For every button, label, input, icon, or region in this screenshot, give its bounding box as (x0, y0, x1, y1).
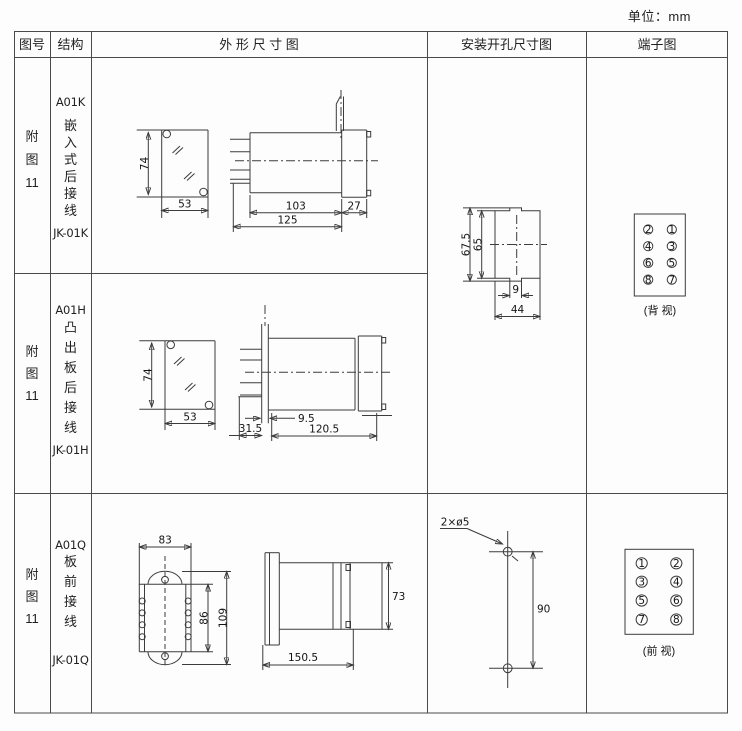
svg-text:6: 6 (645, 258, 652, 270)
svg-text:(前 视): (前 视) (643, 644, 675, 658)
svg-text:125: 125 (277, 214, 297, 226)
relay-dimension-sheet: 单位：mm 图号 结构 外 形 尺 寸 图 安装开孔尺寸图 端子图 附 图 11… (0, 0, 742, 731)
terminal-diagram-back: 2 1 4 3 6 5 8 7 (背 视) (634, 214, 685, 317)
svg-text:(背 视): (背 视) (644, 303, 676, 317)
svg-text:65: 65 (472, 238, 484, 251)
svg-text:31.5: 31.5 (239, 423, 262, 435)
svg-text:1: 1 (638, 558, 645, 570)
svg-text:5: 5 (668, 258, 675, 270)
svg-text:27: 27 (348, 200, 361, 212)
svg-text:53: 53 (183, 412, 196, 424)
svg-text:150.5: 150.5 (288, 652, 318, 664)
svg-text:74: 74 (142, 368, 154, 382)
svg-text:4: 4 (645, 241, 652, 253)
svg-text:8: 8 (673, 614, 680, 626)
svg-text:8: 8 (645, 274, 652, 286)
svg-text:1: 1 (668, 224, 675, 236)
svg-text:2: 2 (673, 558, 680, 570)
outline-drawing-jk01h: 74 53 31.5 9.5 (139, 305, 392, 441)
svg-text:74: 74 (139, 157, 151, 171)
svg-text:86: 86 (199, 611, 211, 625)
svg-text:103: 103 (286, 200, 306, 212)
drill-drawing-row3: 2×ø5 90 (440, 516, 550, 688)
terminal-diagram-front: 1 2 3 4 5 6 7 8 (前 视) (625, 549, 693, 657)
outline-drawing-jk01q: 83 86 109 (139, 535, 405, 670)
outline-drawing-jk01k: 74 53 103 27 (137, 90, 378, 232)
svg-text:2×ø5: 2×ø5 (441, 516, 470, 528)
svg-text:109: 109 (217, 608, 229, 628)
svg-text:3: 3 (668, 241, 675, 253)
svg-text:73: 73 (392, 591, 405, 603)
svg-text:9: 9 (512, 284, 519, 296)
svg-text:3: 3 (638, 576, 645, 588)
svg-text:83: 83 (159, 535, 172, 547)
svg-text:7: 7 (668, 274, 675, 286)
cutout-drawing-rows12: 67.5 65 9 44 (460, 208, 547, 320)
svg-text:90: 90 (537, 604, 550, 616)
svg-text:67.5: 67.5 (460, 233, 472, 256)
svg-text:4: 4 (673, 576, 680, 588)
svg-text:120.5: 120.5 (309, 423, 339, 435)
svg-text:5: 5 (638, 595, 645, 607)
svg-text:6: 6 (673, 595, 680, 607)
svg-text:2: 2 (645, 224, 652, 236)
svg-text:44: 44 (511, 304, 525, 316)
drawings-layer: 74 53 103 27 (0, 0, 742, 731)
svg-text:7: 7 (638, 614, 645, 626)
svg-text:53: 53 (178, 199, 191, 211)
